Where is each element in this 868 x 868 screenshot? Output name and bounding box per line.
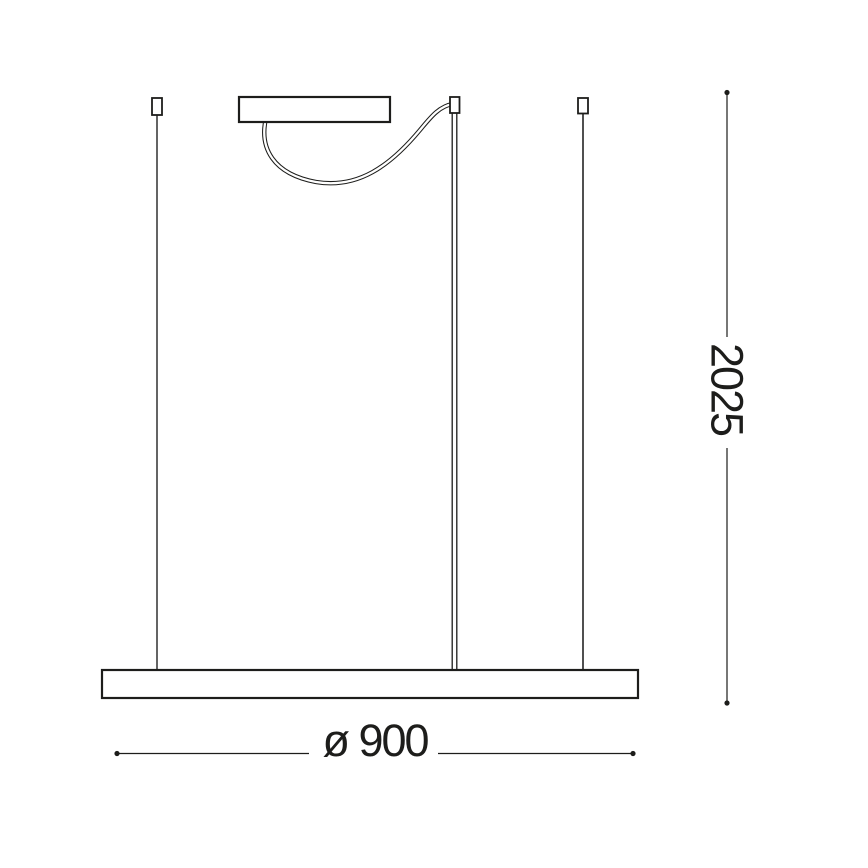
- lamp-ring-profile: [102, 670, 638, 698]
- height-dim-endpoint-top: [724, 90, 729, 95]
- ceiling-fixing-center: [450, 97, 460, 113]
- diameter-dim-endpoint-right: [630, 751, 635, 756]
- lamp-dimension-diagram: 2025 ø 900: [0, 0, 868, 868]
- fixture-drawing: [102, 97, 638, 698]
- height-dim-label: 2025: [702, 343, 753, 436]
- dimension-annotations: 2025 ø 900: [114, 90, 752, 766]
- ceiling-canopy: [239, 97, 390, 122]
- suspension-rod-center: [452, 111, 457, 670]
- diameter-dim-label: ø 900: [322, 715, 428, 766]
- ceiling-fixing-left: [152, 98, 162, 115]
- diameter-dim-endpoint-left: [114, 751, 119, 756]
- ceiling-fixing-right: [578, 98, 588, 114]
- height-dim-endpoint-bottom: [724, 700, 729, 705]
